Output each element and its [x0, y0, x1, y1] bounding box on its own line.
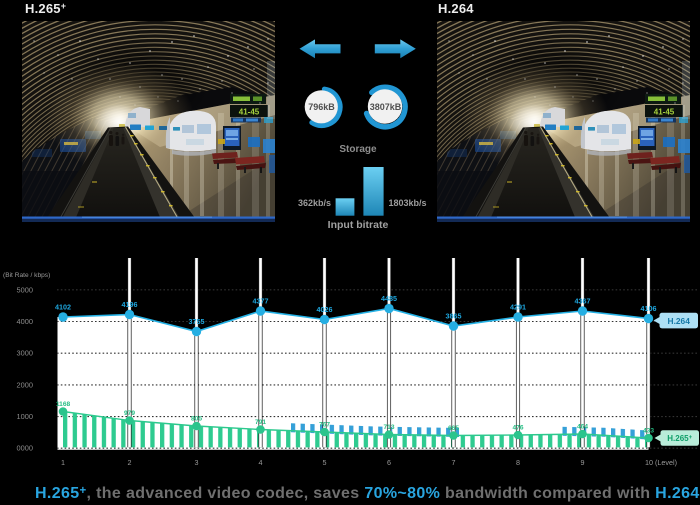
svg-text:2000: 2000: [17, 380, 33, 389]
svg-text:7: 7: [452, 458, 456, 467]
svg-text:476: 476: [512, 425, 523, 432]
svg-text:10 (Level): 10 (Level): [645, 458, 677, 467]
svg-text:5: 5: [323, 458, 327, 467]
svg-text:9: 9: [581, 458, 585, 467]
svg-text:767: 767: [319, 422, 330, 429]
svg-text:4485: 4485: [381, 294, 397, 303]
svg-text:3000: 3000: [17, 349, 33, 358]
svg-text:4102: 4102: [55, 303, 71, 312]
svg-text:3: 3: [195, 458, 199, 467]
svg-text:805: 805: [191, 416, 202, 423]
svg-text:713: 713: [383, 424, 394, 431]
svg-text:H.264: H.264: [668, 316, 691, 326]
svg-text:4026: 4026: [317, 305, 333, 314]
svg-text:3865: 3865: [446, 312, 462, 321]
svg-text:4367: 4367: [575, 297, 591, 306]
svg-text:0000: 0000: [17, 443, 33, 452]
svg-text:791: 791: [255, 419, 266, 426]
svg-text:4291: 4291: [510, 303, 526, 312]
svg-text:8: 8: [516, 458, 520, 467]
svg-text:5000: 5000: [17, 285, 33, 294]
svg-text:4196: 4196: [122, 300, 138, 309]
svg-text:1: 1: [61, 458, 65, 467]
svg-text:(Bit Rate / kbps): (Bit Rate / kbps): [3, 272, 50, 279]
svg-text:4: 4: [259, 458, 263, 467]
svg-text:4377: 4377: [253, 297, 269, 306]
svg-text:4000: 4000: [17, 317, 33, 326]
svg-text:1000: 1000: [17, 412, 33, 421]
svg-text:665: 665: [448, 425, 459, 432]
svg-text:979: 979: [124, 410, 135, 417]
svg-text:2: 2: [128, 458, 132, 467]
svg-text:464: 464: [577, 424, 588, 431]
svg-text:6: 6: [387, 458, 391, 467]
svg-text:3755: 3755: [189, 317, 205, 326]
svg-text:1168: 1168: [56, 401, 71, 408]
svg-text:433: 433: [643, 428, 654, 435]
svg-text:4106: 4106: [641, 304, 657, 313]
